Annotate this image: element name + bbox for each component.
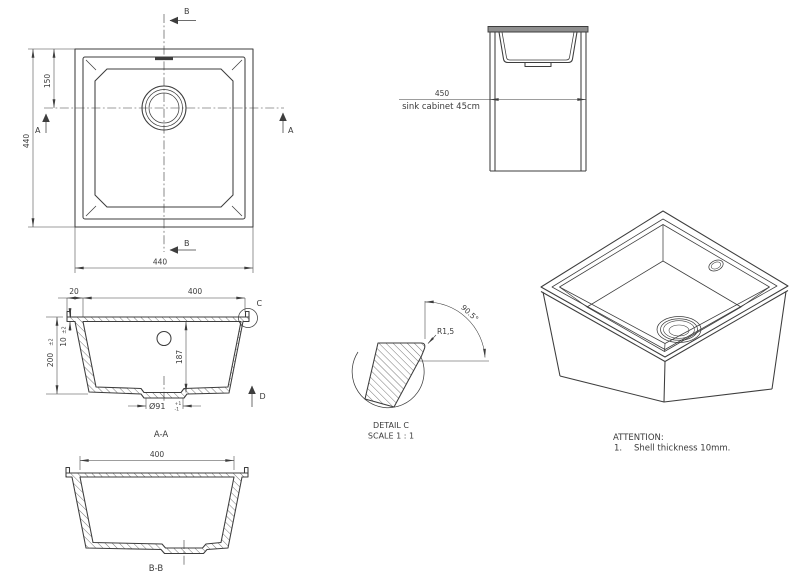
detail-c-title: DETAIL C xyxy=(373,421,409,430)
direction-marker-d: D xyxy=(252,386,266,407)
bowl-opening-iso xyxy=(560,225,770,344)
rim-corner-cross-section xyxy=(365,343,425,407)
dim-450-label: 450 xyxy=(435,89,450,98)
dim-200-tolerance: ±2 xyxy=(49,338,55,345)
attention-note: ATTENTION: 1. Shell thickness 10mm. xyxy=(613,433,730,454)
section-aa-view: C 20 400 200 ±2 10 ±2 187 Ø91 xyxy=(46,287,266,440)
attention-title: ATTENTION: xyxy=(613,433,664,443)
shell-cross-section-bb xyxy=(66,473,248,554)
dim-height-label: 440 xyxy=(22,134,31,149)
sink-technical-drawing: 440 150 440 A A B B xyxy=(0,0,800,579)
dim-10-label: 10 xyxy=(59,337,68,347)
dim-400-label-aa: 400 xyxy=(188,287,203,296)
body-bottom-edges xyxy=(560,376,772,402)
section-marker-a-right: A xyxy=(283,113,294,135)
overflow-hole-section xyxy=(157,332,171,346)
section-bb-view: 400 B-B xyxy=(66,450,248,574)
dim-10-tolerance: ±2 xyxy=(62,326,68,333)
bowl-bottom-iso xyxy=(587,261,741,352)
detail-c-marker-label: C xyxy=(257,299,263,308)
attention-item-number: 1. xyxy=(614,444,622,454)
dim-bowl-width-bb: 400 xyxy=(80,450,234,470)
rim-inner-edge-iso xyxy=(552,219,777,350)
dim-bowl-depth: 187 xyxy=(175,322,186,393)
section-aa-title: A-A xyxy=(154,430,169,440)
detail-c-view: 90.5° R1,5 DETAIL C SCALE 1 : 1 xyxy=(352,301,489,441)
marker-b-top-label: B xyxy=(184,7,190,16)
dim-width-label: 440 xyxy=(153,258,168,267)
radius-label: R1,5 xyxy=(437,327,454,336)
dim-200-label: 200 xyxy=(46,353,55,368)
cabinet-view: 450 sink cabinet 45cm xyxy=(399,27,588,172)
dim-400-label-bb: 400 xyxy=(150,450,165,459)
section-marker-b-top: B xyxy=(170,7,196,21)
dim-187-label: 187 xyxy=(175,350,184,365)
dim-shell-thickness: 10 ±2 xyxy=(59,308,70,347)
rim-end-tab-right-bb xyxy=(245,468,249,474)
dim-rim-and-bowl-width: 20 400 xyxy=(58,287,245,318)
radius-callout: R1,5 xyxy=(428,327,454,344)
attention-item-text: Shell thickness 10mm. xyxy=(634,444,730,454)
rim-outer-edge-iso xyxy=(541,211,788,357)
bowl-inner-profile xyxy=(502,32,574,60)
dim-150-label: 150 xyxy=(43,74,52,89)
cabinet-caption: sink cabinet 45cm xyxy=(402,102,480,112)
plan-view: 440 150 440 A A B B xyxy=(22,7,294,273)
section-bb-title: B-B xyxy=(149,564,164,574)
marker-a-right-label: A xyxy=(288,126,294,135)
dim-overall-width: 440 xyxy=(75,227,253,273)
dim-drain-offset: 150 xyxy=(43,49,54,108)
section-marker-b-bottom: B xyxy=(170,239,196,250)
marker-b-bottom-label: B xyxy=(184,239,190,248)
drain-boss xyxy=(525,63,551,67)
bowl-outer-profile xyxy=(499,32,577,63)
drain-iso xyxy=(657,317,701,343)
dim-20-label: 20 xyxy=(69,287,79,296)
angle-label: 90.5° xyxy=(459,303,480,324)
detail-c-scale: SCALE 1 : 1 xyxy=(368,432,414,441)
dim-o91-label: Ø91 xyxy=(149,401,165,411)
dim-o91-tol-minus: -1 xyxy=(175,407,180,413)
dim-cabinet-width: 450 sink cabinet 45cm xyxy=(399,89,586,112)
dim-drain-diameter: Ø91 +1 -1 xyxy=(128,398,201,413)
section-marker-a-left: A xyxy=(35,114,46,135)
technical-drawing-sheet: 440 150 440 A A B B xyxy=(0,0,800,579)
marker-a-left-label: A xyxy=(35,126,41,135)
marker-d-label: D xyxy=(260,392,266,401)
isometric-view xyxy=(541,211,788,402)
rim-end-tab-left-bb xyxy=(66,468,70,474)
dim-o91-tol-plus: +1 xyxy=(175,401,182,407)
countertop-slab xyxy=(488,27,588,33)
rim-end-tab-right xyxy=(246,312,250,318)
cabinet-panels xyxy=(490,32,586,171)
shell-cross-section xyxy=(67,317,249,398)
overflow-hole-iso xyxy=(707,258,725,273)
